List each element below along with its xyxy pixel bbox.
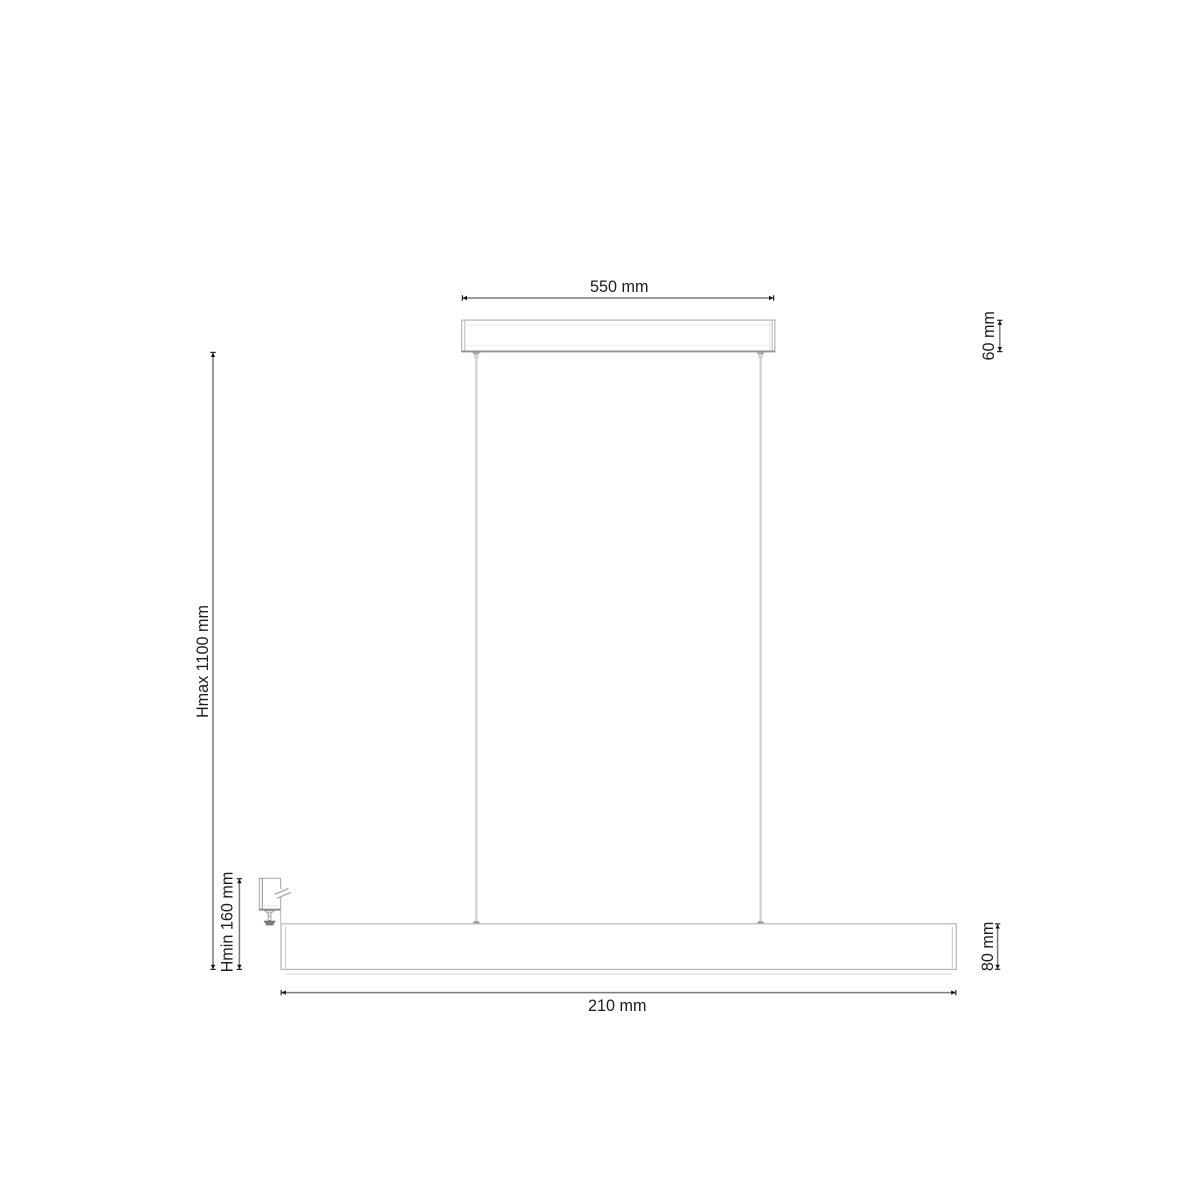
svg-text:60 mm: 60 mm bbox=[980, 311, 998, 360]
svg-text:Hmin 160 mm: Hmin 160 mm bbox=[218, 872, 236, 973]
svg-text:80 mm: 80 mm bbox=[979, 922, 997, 971]
svg-text:210 mm: 210 mm bbox=[588, 997, 646, 1015]
svg-text:550 mm: 550 mm bbox=[590, 278, 648, 296]
svg-text:Hmax 1100 mm: Hmax 1100 mm bbox=[194, 605, 212, 718]
